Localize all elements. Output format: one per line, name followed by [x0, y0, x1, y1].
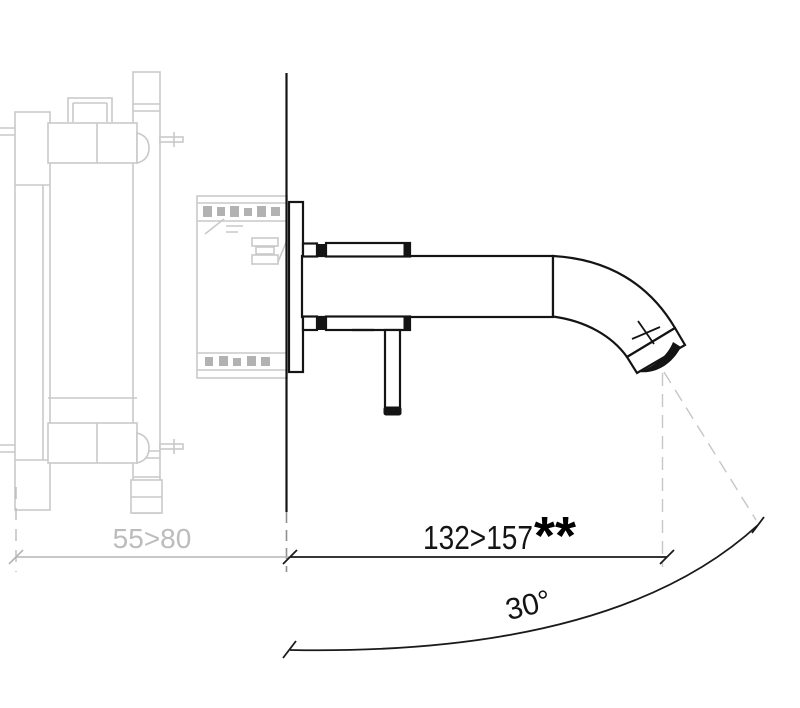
- thread-hatch-upper: [203, 206, 280, 217]
- spout-angle-label: 30°: [502, 584, 554, 627]
- spout-upper-collar-edge: [404, 244, 411, 257]
- spout-reach-label: 132>157: [423, 519, 533, 556]
- valve-body-left-slab: [15, 112, 50, 510]
- spout-lower-nub: [303, 317, 317, 331]
- spout-upper-collar: [326, 243, 410, 257]
- upper-port-body: [48, 123, 137, 163]
- angle-arc-arrow-right: [752, 517, 764, 533]
- lower-port-body: [48, 423, 137, 463]
- spout-upper-nub: [303, 244, 317, 257]
- spout-tip-angled-projection: [664, 372, 756, 520]
- wall-connection-block: [197, 196, 287, 378]
- wall-plate: [289, 202, 303, 372]
- retainer-stack: [252, 238, 287, 264]
- spout-lower-collar: [326, 317, 410, 331]
- installation-drawing-page: 55>80 132>157 ** 30°: [0, 0, 800, 708]
- thread-hatch-lower: [205, 356, 270, 366]
- lever-handle: [385, 330, 400, 409]
- spout-tube: [302, 256, 553, 317]
- spout-assembly: [289, 202, 685, 416]
- installation-drawing: 55>80 132>157 ** 30°: [0, 0, 800, 708]
- spout-upper-seal: [317, 244, 326, 257]
- lower-port-pin: [160, 444, 183, 449]
- dimension-wall-depth: 55>80: [9, 523, 289, 564]
- spout-reach-footnote: **: [534, 506, 576, 566]
- wall-depth-label: 55>80: [113, 523, 192, 554]
- spout-lower-seal: [317, 317, 326, 331]
- wall-connection-bands: [197, 203, 287, 370]
- concealed-valve-body: [0, 72, 287, 513]
- dimension-spout-reach: 132>157 **: [283, 506, 674, 566]
- upper-port-pin: [160, 137, 183, 142]
- spout-lower-collar-edge: [404, 317, 411, 330]
- top-cap-bracket: [68, 98, 112, 122]
- lever-handle-tip: [384, 407, 402, 416]
